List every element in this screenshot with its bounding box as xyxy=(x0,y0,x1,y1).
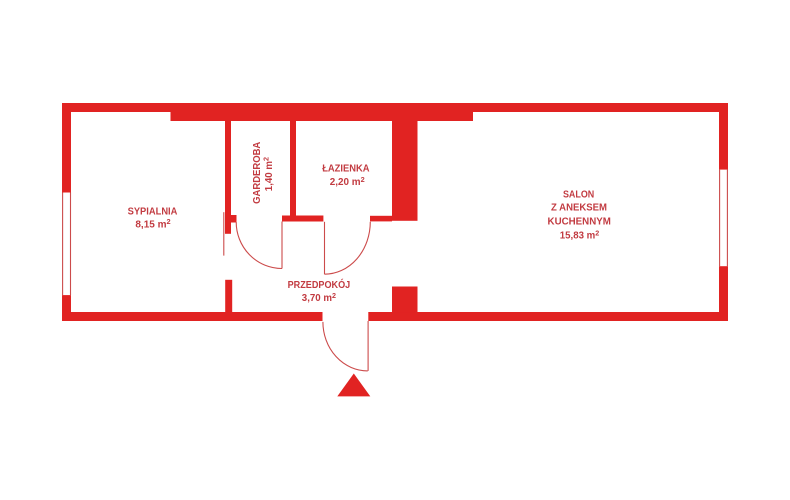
svg-text:SALON: SALON xyxy=(563,189,594,200)
svg-text:Z ANEKSEM: Z ANEKSEM xyxy=(551,203,607,214)
svg-text:8,15 m2: 8,15 m2 xyxy=(135,217,170,230)
svg-text:15,83 m2: 15,83 m2 xyxy=(560,228,600,241)
svg-text:1,40 m2: 1,40 m2 xyxy=(262,157,275,191)
svg-text:ŁAZIENKA: ŁAZIENKA xyxy=(322,163,369,174)
svg-text:GARDEROBA: GARDEROBA xyxy=(252,142,263,204)
svg-text:SYPIALNIA: SYPIALNIA xyxy=(128,206,178,217)
svg-text:3,70 m2: 3,70 m2 xyxy=(302,291,336,304)
svg-text:KUCHENNYM: KUCHENNYM xyxy=(548,216,611,227)
svg-text:PRZEDPOKÓJ: PRZEDPOKÓJ xyxy=(288,278,351,291)
svg-text:2,20 m2: 2,20 m2 xyxy=(330,175,365,188)
